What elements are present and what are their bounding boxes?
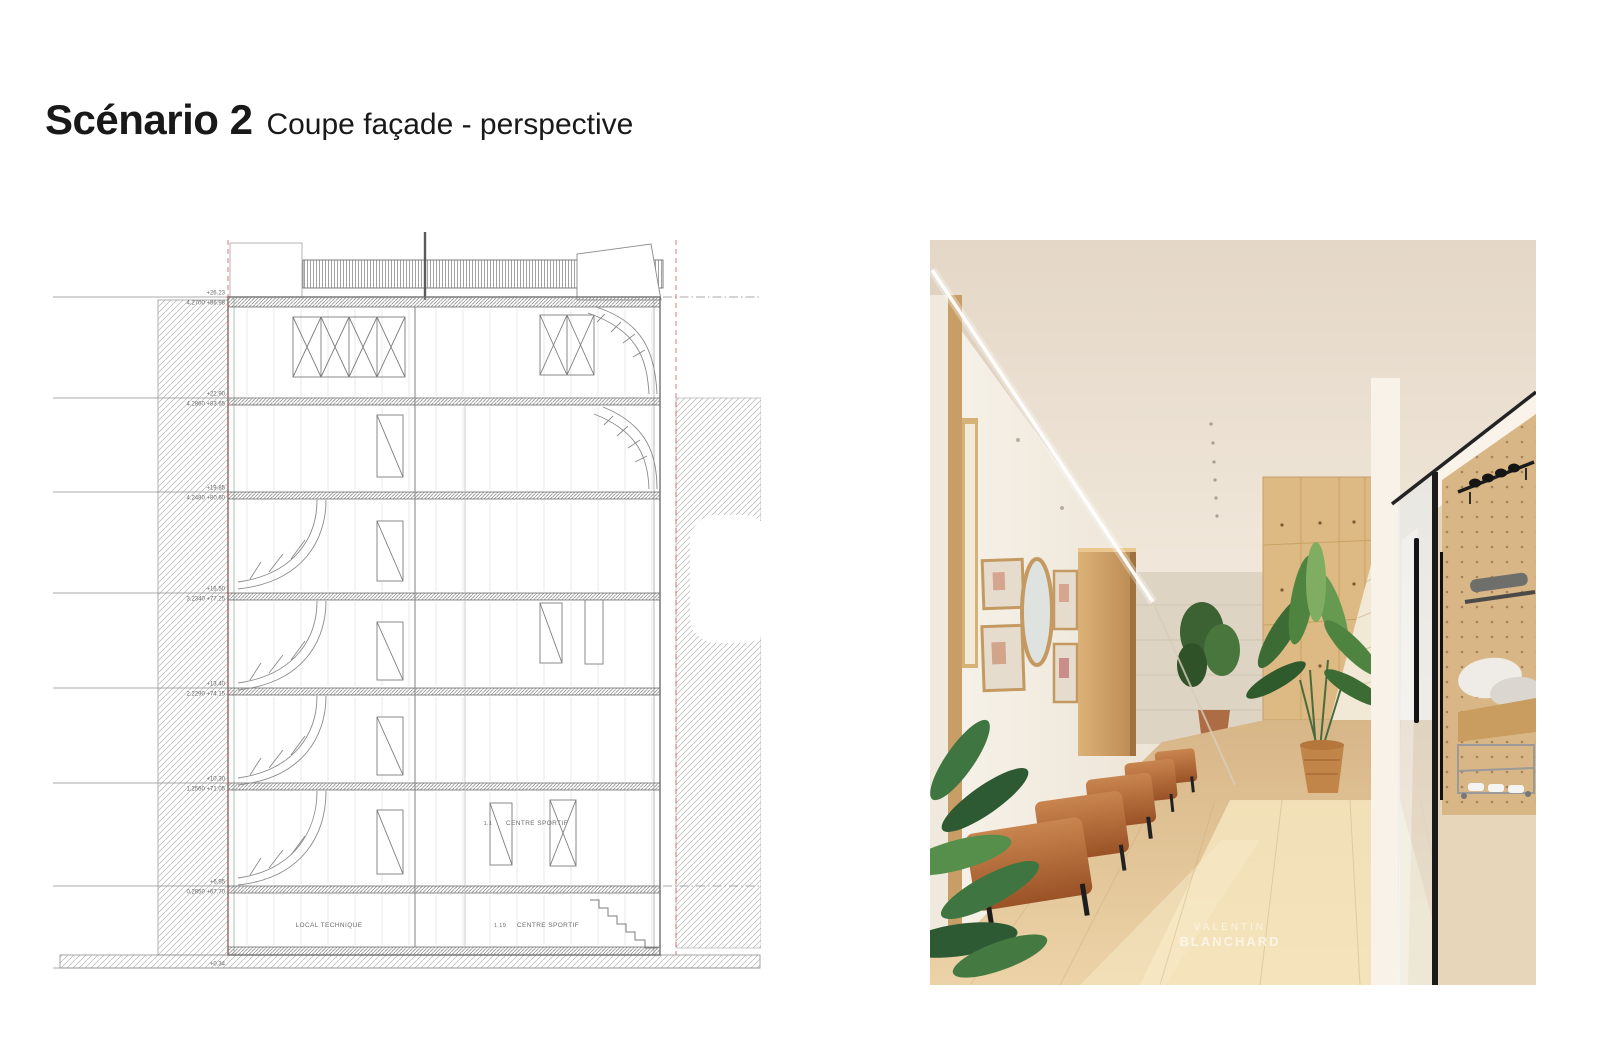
elev-note: 4.2860 +83.65 [186,402,225,408]
glass-door-pillar [1371,378,1400,985]
door-handle [1414,538,1419,723]
shoes [1508,785,1524,793]
elev-note: 3.2340 +77.25 [186,597,225,603]
perspective-photo: VALENTIN BLANCHARD [930,240,1536,985]
ground-hatch [60,955,760,968]
elev-label: +13.40 [206,682,225,688]
elev-label: +6.95 [210,880,226,886]
wardrobe [1078,548,1136,756]
watermark-line1: VALENTIN [1194,922,1266,933]
elev-note: 4.2480 +80.60 [186,496,225,502]
glass-mullion [1432,472,1438,985]
section-svg: +26.23 4.2700 +86.98 +22.90 4.2860 +83.6… [45,210,765,970]
white-door [965,424,975,664]
page-title: Scénario 2Coupe façade - perspective [45,96,633,144]
elev-label: +0.34 [210,962,226,968]
door-handle-2 [1440,552,1443,800]
gym-room [1435,390,1536,985]
elev-note: 0.2850 +67.70 [186,890,225,896]
elev-note: 1.2560 +71.05 [186,787,225,793]
wood-pilaster [948,295,962,985]
room-label-lower-right: CENTRE SPORTIF [517,922,579,929]
elev-label: +10.30 [206,777,225,783]
room-label-lower-left: LOCAL TECHNIQUE [295,922,362,929]
right-neighbour-hatch [676,398,765,948]
elev-label: +19.85 [206,486,225,492]
slide: Scénario 2Coupe façade - perspective [0,0,1600,1053]
watermark-line2: BLANCHARD [1179,934,1280,949]
photo-svg: VALENTIN BLANCHARD [930,240,1536,985]
wall-spot [1016,438,1020,442]
title-subtitle: Coupe façade - perspective [266,108,633,141]
elev-note: 2.2290 +74.15 [186,692,225,698]
elev-label: +16.50 [206,587,225,593]
photo-left-edge-wall [930,295,948,985]
photo-watermark: VALENTIN BLANCHARD [1179,922,1280,949]
shoes [1488,784,1504,792]
facade-section-drawing: +26.23 4.2700 +86.98 +22.90 4.2860 +83.6… [45,210,765,970]
shoes [1468,783,1484,791]
elev-label: +22.90 [206,392,225,398]
roof-penthouse [230,243,302,297]
round-mirror [1022,559,1052,665]
title-main: Scénario 2 [45,96,252,143]
wall-spot [1060,506,1064,510]
room-label-upper: CENTRE SPORTIF [506,820,568,827]
elev-note: 4.2700 +86.98 [186,301,225,307]
elev-label: +26.23 [206,291,225,297]
room-label-prefix: 1.1 [484,821,493,827]
roof [230,232,663,300]
room-label-prefix-2: 1.19 [494,923,506,929]
roof-bulkhead [577,244,661,300]
